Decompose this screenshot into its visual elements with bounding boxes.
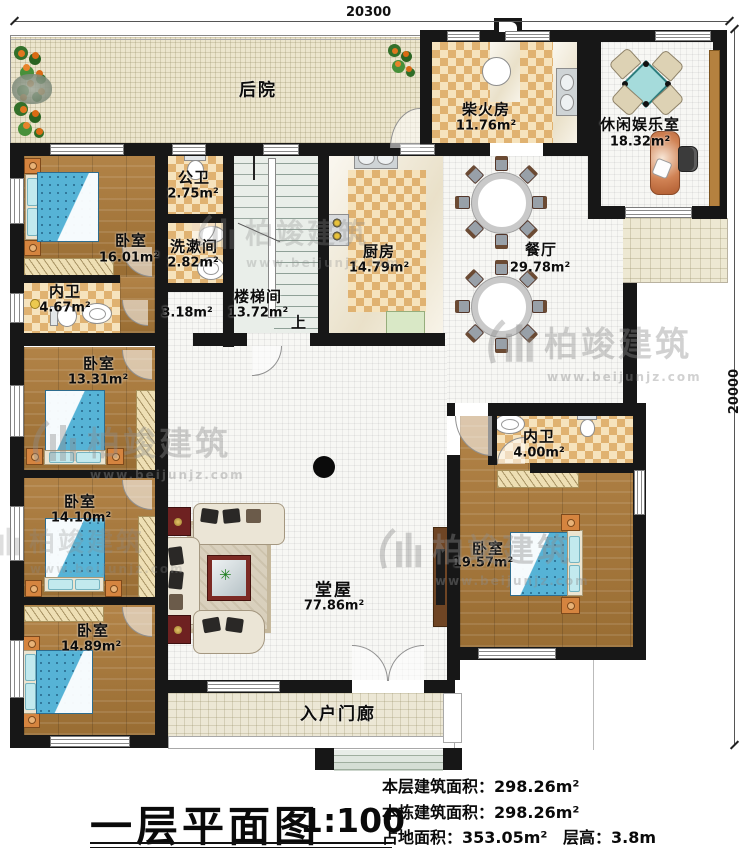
wall [623, 283, 637, 403]
pillow [25, 654, 36, 681]
shrub-icon [12, 74, 52, 104]
area-ensuite-right: 4.00m² [513, 446, 564, 461]
bed-bedroom3 [45, 518, 105, 581]
dining-chair [495, 234, 508, 249]
porch-edge [168, 736, 455, 749]
stat-floor-area: 本层建筑面积：298.26m² [382, 773, 579, 797]
window [10, 293, 24, 323]
sofa-cushion [225, 617, 244, 633]
area-stairwell: 13.72m² [228, 306, 288, 321]
firewood-sink-icon [556, 68, 578, 116]
stairs-up-arrow [253, 152, 255, 180]
window [207, 681, 280, 692]
area-bedroom2: 13.31m² [68, 373, 128, 388]
label-bedroom1: 卧室 [115, 230, 147, 251]
stat-label: 层高： [563, 828, 611, 847]
sofa-cushion [169, 594, 183, 610]
window [447, 31, 480, 41]
floor-plan: ✳ [0, 0, 750, 855]
bed-bedroom2 [45, 390, 105, 454]
wall [168, 283, 223, 292]
label-firewood: 柴火房 [462, 99, 510, 120]
label-dining: 餐厅 [525, 239, 557, 260]
stat-value: 298.26m² [494, 803, 579, 822]
window [634, 470, 645, 515]
label-kitchen: 厨房 [363, 241, 395, 262]
area-kitchen: 14.79m² [349, 261, 409, 276]
pillow [48, 579, 73, 590]
dimension-top-value: 20300 [346, 5, 391, 20]
window [263, 144, 299, 155]
label-public-bath: 公卫 [178, 167, 210, 188]
wall [447, 403, 455, 416]
mahjong-corner-dot [643, 101, 649, 107]
sofa-cushion [168, 546, 184, 566]
wall [420, 37, 432, 143]
stat-label: 本层建筑面积： [382, 777, 494, 796]
area-hall: 77.86m² [304, 599, 364, 614]
window [50, 736, 130, 747]
area-washroom: 2.82m² [167, 256, 218, 271]
title-underline [90, 842, 392, 844]
area-firewood: 11.76m² [456, 119, 516, 134]
wall [530, 463, 633, 473]
wall [318, 150, 329, 333]
pillow [569, 565, 580, 592]
nightstand [561, 597, 580, 614]
sofa-cushion [168, 570, 184, 589]
window [172, 144, 206, 155]
backyard-fence [10, 35, 420, 36]
area-ensuite-left: 4.67m² [39, 301, 90, 316]
pillow [75, 579, 100, 590]
window [10, 506, 24, 561]
sofa-cushion [246, 509, 261, 523]
sofa-cushion [202, 617, 221, 634]
window [10, 640, 24, 698]
label-bedroom2: 卧室 [83, 353, 115, 374]
toilet-icon [580, 419, 595, 437]
wall [633, 403, 646, 660]
area-public-bath: 2.75m² [167, 187, 218, 202]
dimension-tick [725, 16, 734, 25]
side-table [164, 507, 191, 536]
pillow [76, 452, 101, 463]
dimension-right-value: 20000 [727, 369, 742, 414]
label-bedroom3: 卧室 [64, 491, 96, 512]
wall [492, 403, 646, 416]
dining-table-group [460, 265, 544, 349]
window [10, 178, 24, 224]
bed-bedroom5 [510, 532, 569, 596]
sofa-cushion [200, 508, 219, 524]
stat-value: 298.26m² [494, 777, 579, 796]
porch-column [443, 748, 462, 770]
area-bedroom1: 16.01m² [99, 251, 159, 266]
window [50, 144, 124, 155]
bed-bedroom1 [37, 172, 99, 242]
stat-label: 本栋建筑面积： [382, 803, 494, 822]
wall [10, 333, 155, 346]
wall-wood-trim [709, 50, 720, 208]
wall [155, 143, 168, 693]
nightstand [107, 448, 124, 465]
dining-chair [495, 338, 508, 353]
area-bedroom4: 14.89m² [61, 640, 121, 655]
terrace-edge-line [593, 658, 594, 750]
column-dot [313, 456, 335, 478]
office-chair [678, 146, 698, 172]
window [10, 385, 24, 437]
stat-value: 353.05m² [462, 828, 547, 847]
dining-chair [455, 196, 470, 209]
plant-berries [20, 106, 27, 113]
backyard-fence [10, 35, 11, 143]
wall [168, 214, 223, 223]
label-ensuite-left: 内卫 [49, 281, 81, 302]
stat-land-area: 占地面积：353.05m² [382, 824, 547, 848]
nightstand [561, 514, 580, 531]
window [478, 648, 556, 659]
wall [692, 206, 727, 219]
window [655, 31, 711, 41]
stat-value: 3.8m [611, 828, 656, 847]
dimension-tick [730, 740, 739, 749]
stove-pot-icon [482, 57, 511, 86]
title-underline [90, 847, 392, 848]
wall [24, 470, 155, 478]
plant-icon: ✳ [219, 566, 232, 584]
nightstand [105, 580, 122, 597]
wardrobe [136, 390, 157, 472]
nightstand [23, 712, 40, 728]
stat-story-height: 层高：3.8m [563, 824, 656, 848]
label-washroom: 洗漱间 [170, 236, 218, 257]
nightstand [25, 580, 42, 597]
wall [193, 333, 247, 346]
mahjong-corner-dot [643, 61, 649, 67]
label-porch: 入户门廊 [300, 700, 376, 725]
dining-chair [532, 300, 547, 313]
area-corridor: 3.18m² [161, 306, 212, 321]
pillow [25, 683, 36, 710]
porch-column [315, 748, 334, 770]
wall [310, 333, 445, 346]
plant-berries [392, 48, 398, 54]
pillow [569, 536, 580, 563]
nightstand [24, 240, 41, 256]
backyard-fence [10, 39, 420, 40]
bed-bedroom4 [36, 650, 93, 714]
label-stairs-up: 上 [291, 312, 307, 333]
area-bedroom5: 19.57m² [453, 556, 513, 571]
window [505, 31, 550, 41]
label-hall: 堂屋 [315, 576, 353, 601]
dining-chair [455, 300, 470, 313]
sofa-cushion [222, 508, 240, 524]
dining-chair [495, 156, 508, 171]
tv-icon [436, 549, 445, 605]
washbasin-icon [494, 414, 525, 434]
label-leisure: 休闲娱乐室 [600, 114, 680, 135]
area-bedroom3: 14.10m² [51, 511, 111, 526]
wall [24, 597, 168, 605]
stat-building-area: 本栋建筑面积：298.26m² [382, 799, 579, 823]
nightstand [26, 448, 43, 465]
area-dining: 29.78m² [510, 261, 570, 276]
label-stairwell: 楼梯间 [234, 286, 282, 307]
label-ensuite-right: 内卫 [523, 426, 555, 447]
stat-label: 占地面积： [382, 828, 462, 847]
dining-table-group [460, 161, 544, 245]
plan-title: 一层平面图 [90, 793, 320, 854]
label-backyard: 后院 [239, 76, 277, 101]
label-bedroom4: 卧室 [77, 620, 109, 641]
dining-chair [532, 196, 547, 209]
porch-steps [334, 750, 443, 771]
room-backyard-floor [10, 37, 420, 143]
area-leisure: 18.32m² [610, 135, 670, 150]
window [625, 207, 692, 218]
dimension-line-top [14, 21, 730, 22]
wall [588, 206, 625, 219]
porch-pilaster [443, 693, 462, 743]
dining-chair [495, 260, 508, 275]
wall [155, 693, 168, 735]
wall [424, 680, 455, 693]
pillow [49, 452, 74, 463]
side-table [164, 615, 191, 644]
stove-icon [327, 214, 349, 246]
plant-berries [18, 50, 25, 57]
